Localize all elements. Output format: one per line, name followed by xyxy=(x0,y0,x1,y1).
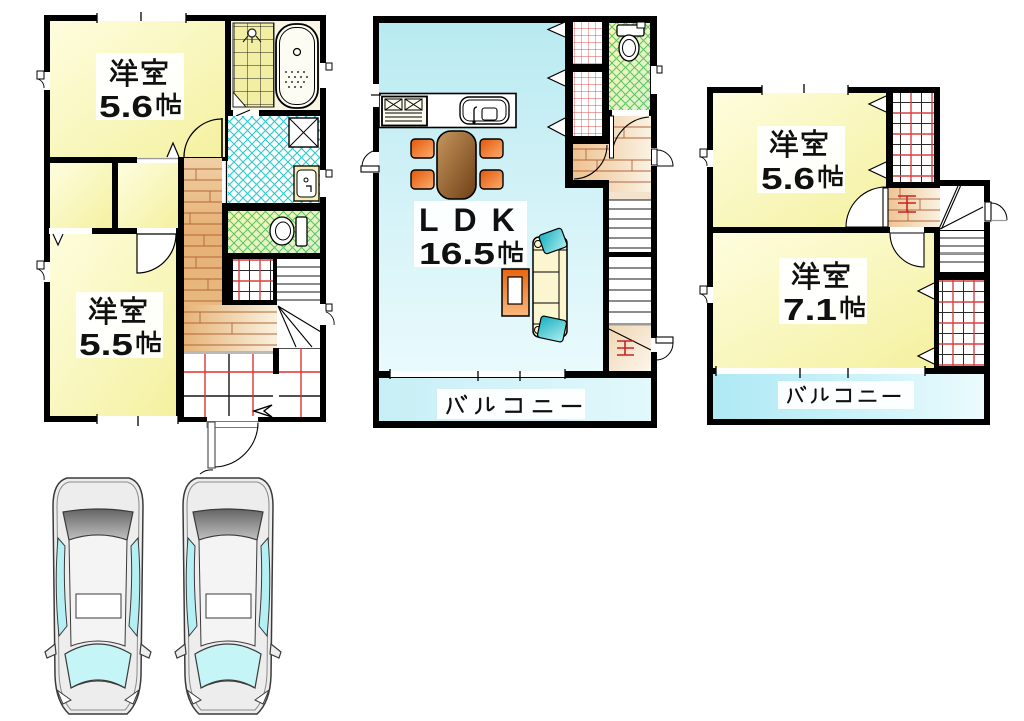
svg-text:LDK: LDK xyxy=(419,202,530,238)
svg-text:5.5: 5.5 xyxy=(79,327,133,362)
svg-text:5.6: 5.6 xyxy=(761,161,815,196)
svg-text:5.6: 5.6 xyxy=(99,89,153,124)
svg-text:16.5: 16.5 xyxy=(419,236,495,271)
svg-text:7.1: 7.1 xyxy=(783,292,837,327)
